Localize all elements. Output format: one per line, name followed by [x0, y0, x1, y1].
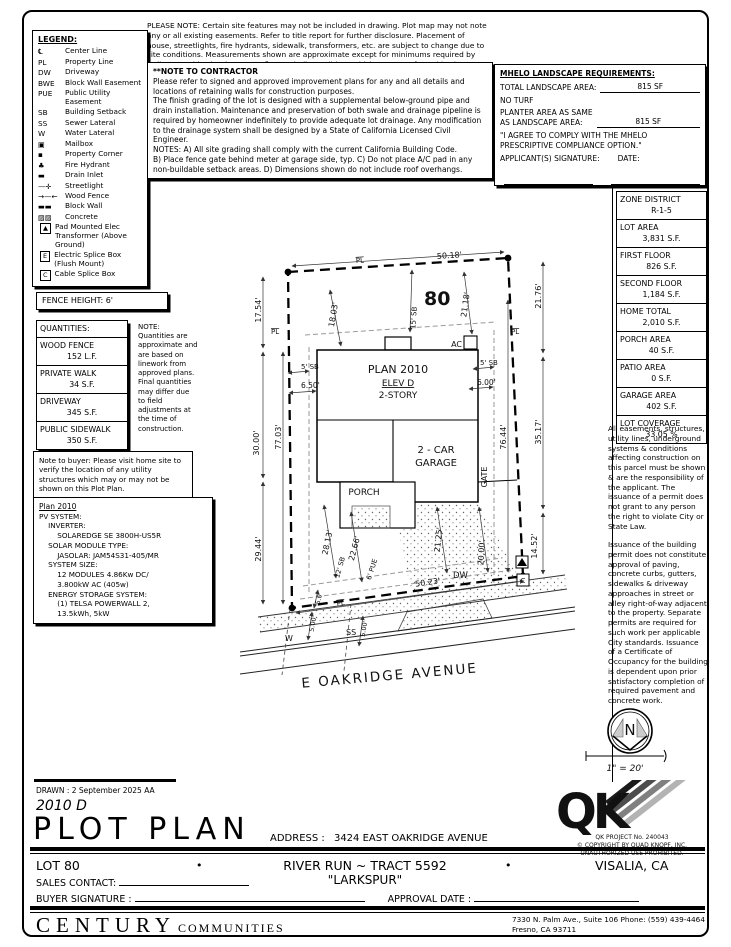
tract-label: RIVER RUN ~ TRACT 5592: [240, 858, 490, 873]
gate-label: GATE: [480, 467, 489, 488]
cable-box-label: C: [521, 577, 526, 585]
legend-item: PUE Public Utility Easement: [38, 89, 142, 107]
legend-symbol-icon: W: [38, 129, 61, 138]
legend-item-label: Mailbox: [65, 140, 142, 149]
porch-step: [352, 506, 390, 528]
zone-table-row: SECOND FLOOR 1,184 S.F.: [616, 275, 707, 304]
pv-line: (1) TELSA POWERWALL 2,: [39, 599, 207, 609]
legend-item: E Electric Splice Box (Flush Mount): [38, 251, 142, 269]
quantity-row: WOOD FENCE 152 L.F.: [36, 337, 128, 366]
pv-line: 3.800kW AC (405w): [39, 580, 207, 590]
dim-500a: 5.00': [308, 615, 319, 633]
legend-item-label: Sewer Lateral: [65, 119, 142, 128]
north-letter: N: [624, 721, 635, 739]
dw-label: DW: [453, 571, 469, 581]
legend-title: LEGEND:: [38, 35, 142, 45]
address-row: ADDRESS : 3424 EAST OAKRIDGE AVENUE: [270, 833, 488, 844]
mhelo-agree-statement: "I AGREE TO COMPLY WITH THE MHELO PRESCR…: [500, 131, 700, 151]
pv-line: PV SYSTEM:: [39, 512, 207, 522]
contractor-note-title: **NOTE TO CONTRACTOR: [153, 67, 487, 77]
dim-2176: 21.76': [534, 283, 543, 308]
legend-item: ▨▨ Concrete: [38, 213, 142, 222]
quantity-value: 345 S.F.: [40, 406, 124, 417]
scale-label: 1" = 20': [606, 764, 643, 774]
zone-table-row: HOME TOTAL 2,010 S.F.: [616, 303, 707, 332]
legend-item: —✛ Streetlight: [38, 182, 142, 191]
mhelo-signature-label: APPLICANT(S) SIGNATURE:: [500, 154, 600, 164]
scale-bar: 1" = 20': [582, 748, 677, 774]
legend-item: ▬ Drain Inlet: [38, 171, 142, 180]
legend-item: ▬▬ Block Wall: [38, 202, 142, 211]
quantity-row: PRIVATE WALK 34 S.F.: [36, 365, 128, 394]
dim-3000: 30.00': [252, 430, 261, 455]
legend-item: ℄ Center Line: [38, 47, 142, 56]
dim-1452: 14.52': [530, 533, 539, 558]
legend-box: LEGEND: ℄ Center Line PL Property Line D…: [32, 30, 148, 287]
pl-label-bottom: PL: [336, 599, 345, 608]
quantity-row: PUBLIC SIDEWALK 350 S.F.: [36, 421, 128, 450]
dim-top-label: 50.18': [437, 250, 463, 261]
pv-line: ENERGY STORAGE SYSTEM:: [39, 590, 207, 600]
legend-item: ▲ Pad Mounted Elec Transformer (Above Gr…: [38, 223, 142, 250]
legend-item: →—← Wood Fence: [38, 192, 142, 201]
buyer-signature-label: BUYER SIGNATURE :: [36, 894, 132, 905]
legend-symbol-icon: SS: [38, 119, 61, 128]
drawn-by: DRAWN : 2 September 2025 AA: [36, 786, 155, 795]
pv-line: 12 MODULES 4.86Kw DC/: [39, 570, 207, 580]
legend-symbol-icon: ▲: [40, 223, 51, 234]
address-label: ADDRESS :: [270, 833, 325, 844]
legend-item: PL Property Line: [38, 58, 142, 67]
legend-symbol-icon: ▬▬: [38, 202, 61, 211]
legend-item-label: Driveway: [65, 68, 142, 77]
thin-rule-1: [30, 853, 705, 854]
water-mark: W: [285, 634, 293, 643]
quantity-label: WOOD FENCE: [40, 341, 124, 350]
zone-row-value: 1,184 S.F.: [620, 288, 703, 299]
porch-label: PORCH: [348, 488, 379, 498]
lot-number: 80: [424, 288, 450, 310]
mhelo-date-label: DATE:: [618, 154, 640, 164]
legend-symbol-icon: BWE: [38, 79, 61, 88]
dim-1803: 18.03': [327, 301, 340, 327]
legend-symbol-icon: —✛: [38, 182, 61, 191]
mhelo-no-turf: NO TURF: [500, 96, 700, 106]
pl-label-right: PL: [511, 328, 519, 336]
titleblock-top-rule: [34, 779, 176, 782]
zone-row-label: SECOND FLOOR: [620, 279, 703, 288]
quantities-box: QUANTITIES: WOOD FENCE 152 L.F. PRIVATE …: [36, 321, 128, 450]
address-value: 3424 EAST OAKRIDGE AVENUE: [334, 833, 488, 844]
mhelo-total-label: TOTAL LANDSCAPE AREA:: [500, 83, 596, 93]
buyer-signature-row: BUYER SIGNATURE : APPROVAL DATE :: [36, 891, 639, 905]
legend-symbol-icon: ℄: [38, 47, 61, 56]
pv-line: INVERTER:: [39, 521, 207, 531]
sales-contact-line: [119, 875, 249, 886]
legend-item-label: Public Utility Easement: [65, 89, 142, 107]
quantity-value: 34 S.F.: [40, 378, 124, 389]
builder-address: 7330 N. Palm Ave., Suite 106 Phone: (559…: [512, 915, 705, 935]
street-name: E OAKRIDGE AVENUE: [301, 660, 479, 691]
zone-row-value: 2,010 S.F.: [620, 316, 703, 327]
mhelo-date-line: [611, 174, 700, 185]
legend-item-label: Drain Inlet: [65, 171, 142, 180]
legend-symbol-icon: E: [40, 251, 50, 262]
legend-item-label: Wood Fence: [65, 192, 142, 201]
legend-item: DW Driveway: [38, 68, 142, 77]
qk-logo-text: QK: [556, 784, 632, 840]
contractor-note-box: **NOTE TO CONTRACTOR Please refer to sig…: [147, 62, 493, 179]
legend-item-label: Fire Hydrant: [65, 161, 142, 170]
contractor-note-body: Please refer to signed and approved impr…: [153, 77, 487, 175]
garage-label-2: GARAGE: [415, 458, 457, 469]
tract-name: "LARKSPUR": [240, 873, 490, 887]
qk-project-no: QK PROJECT No. 240043: [595, 834, 668, 841]
pv-line: SOLAR MODULE TYPE:: [39, 541, 207, 551]
fence-height-box: FENCE HEIGHT: 6': [36, 292, 168, 310]
plot-plan-sheet: PLEASE NOTE: Certain site features may n…: [0, 0, 731, 947]
zone-table-row: PATIO AREA 0 S.F.: [616, 359, 707, 388]
legend-item-label: Property Corner: [65, 150, 142, 159]
dim-2000: 20.00': [476, 540, 486, 566]
pl-label-left: PL: [271, 328, 279, 336]
approval-date-label: APPROVAL DATE :: [388, 894, 472, 905]
legend-symbol-icon: SB: [38, 108, 61, 117]
ac-label: AC: [451, 340, 462, 349]
legend-item-label: Streetlight: [65, 182, 142, 191]
legend-item-label: Concrete: [65, 213, 142, 222]
pv-line: 13.5kWh, 5kW: [39, 609, 207, 619]
zone-row-label: GARAGE AREA: [620, 391, 703, 400]
builder-address-line1: 7330 N. Palm Ave., Suite 106 Phone: (559…: [512, 915, 705, 925]
dim-7644: 76.44': [499, 424, 508, 449]
sb5-left-label: 5' SB: [301, 363, 319, 371]
builder-name-1: CENTURY: [36, 913, 176, 937]
zone-row-label: HOME TOTAL: [620, 307, 703, 316]
sales-contact-row: SALES CONTACT:: [36, 875, 249, 889]
quantity-row: DRIVEWAY 345 S.F.: [36, 393, 128, 422]
sales-contact-label: SALES CONTACT:: [36, 878, 116, 889]
zone-row-label: FIRST FLOOR: [620, 251, 703, 260]
quantities-note: NOTE: Quantities are approximate and are…: [138, 323, 198, 434]
zone-row-value: 40 S.F.: [620, 344, 703, 355]
legend-item-label: Block Wall Easement: [65, 79, 142, 88]
sb15-label: 15' SB: [409, 306, 419, 329]
pv-title: Plan 2010: [39, 502, 207, 512]
legend-item-label: Property Line: [65, 58, 142, 67]
plan-elev-label: ELEV D: [382, 379, 414, 389]
mhelo-total-value: 815 SF: [600, 82, 700, 93]
builder-address-line2: Fresno, CA 93711: [512, 925, 705, 935]
zone-row-label: LOT AREA: [620, 223, 703, 232]
heavy-rule-1: [30, 847, 705, 851]
legend-item: C Cable Splice Box: [38, 270, 142, 281]
legend-symbol-icon: ▬: [38, 171, 61, 180]
zone-table-row: PORCH AREA 40 S.F.: [616, 331, 707, 360]
pl-label-top: PL: [356, 256, 365, 265]
zone-table-row: GARAGE AREA 402 S.F.: [616, 387, 707, 416]
builder-name-2: COMMUNITIES: [178, 921, 285, 935]
pv-line: JASOLAR: JAM54S31-405/MR: [39, 551, 207, 561]
zone-row-value: 826 S.F.: [620, 260, 703, 271]
legend-item-label: Electric Splice Box (Flush Mount): [54, 251, 142, 269]
legend-symbol-icon: PUE: [38, 89, 61, 98]
dim-7703: 77.03': [274, 424, 283, 449]
bullet-1: •: [196, 859, 203, 872]
plan-title-label: PLAN 2010: [368, 363, 428, 376]
legend-symbol-icon: DW: [38, 68, 61, 77]
pv-system-box: Plan 2010 PV SYSTEM: INVERTER: SOLAREDGE…: [33, 497, 213, 624]
lot-label: LOT 80: [36, 858, 80, 873]
legend-item: BWE Block Wall Easement: [38, 79, 142, 88]
legend-item: W Water Lateral: [38, 129, 142, 138]
builder-logo: CENTURY COMMUNITIES: [36, 913, 285, 938]
legend-symbol-icon: ▪: [38, 150, 61, 159]
legend-symbol-icon: ♣: [38, 161, 61, 170]
mhelo-planter-value: 815 SF: [597, 117, 700, 128]
approval-date-line: [474, 891, 639, 902]
zone-row-label: PATIO AREA: [620, 363, 703, 372]
ac-unit: [464, 336, 477, 349]
quantities-title: QUANTITIES:: [36, 320, 128, 338]
legend-item: ♣ Fire Hydrant: [38, 161, 142, 170]
bullet-2: •: [505, 859, 512, 872]
legend-item-label: Cable Splice Box: [55, 270, 142, 279]
zone-row-value: 402 S.F.: [620, 400, 703, 411]
plan-story-label: 2-STORY: [379, 391, 418, 401]
heavy-rule-2: [30, 906, 705, 910]
mhelo-box: MHELO LANDSCAPE REQUIREMENTS: TOTAL LAND…: [494, 64, 706, 186]
dim-1754: 17.54': [254, 297, 263, 322]
zone-row-value: R-1-5: [620, 204, 703, 215]
legend-symbol-icon: PL: [38, 58, 61, 67]
garage-label-1: 2 - CAR: [417, 445, 454, 456]
legend-symbol-icon: ▨▨: [38, 213, 61, 222]
quantity-value: 350 S.F.: [40, 434, 124, 445]
zone-row-label: PORCH AREA: [620, 335, 703, 344]
legend-item: SB Building Setback: [38, 108, 142, 117]
legend-item-label: Block Wall: [65, 202, 142, 211]
legend-symbol-icon: ▣: [38, 140, 61, 149]
sb5-right-label: 5' SB: [480, 359, 498, 367]
page-title: PLOT PLAN: [33, 812, 251, 847]
dim-650: 6.50': [301, 381, 320, 390]
city-label: VISALIA, CA: [595, 858, 668, 873]
dim-2944: 29.44': [254, 536, 263, 561]
legend-item-label: Pad Mounted Elec Transformer (Above Grou…: [55, 223, 142, 250]
pv-lines: PV SYSTEM: INVERTER: SOLAREDGE SE 3800H-…: [39, 512, 207, 619]
quantity-label: DRIVEWAY: [40, 397, 124, 406]
zone-row-label: ZONE DISTRICT: [620, 195, 703, 204]
legend-item: ▣ Mailbox: [38, 140, 142, 149]
zone-table-row: ZONE DISTRICT R-1-5: [616, 191, 707, 220]
dim-600: 6.00': [477, 378, 496, 387]
legend-item: SS Sewer Lateral: [38, 119, 142, 128]
buyer-note-box: Note to buyer: Please visit home site to…: [33, 451, 193, 498]
house-bump: [385, 337, 411, 350]
pv-line: SOLAREDGE SE 3800H-US5R: [39, 531, 207, 541]
mhelo-planter-label: PLANTER AREA AS SAME AS LANDSCAPE AREA:: [500, 108, 593, 128]
dim-2266: 22.66': [347, 535, 362, 562]
legend-symbol-icon: →—←: [38, 192, 61, 201]
site-plan-drawing: PL 50.18' 80 15' SB 18.03' 21.18' 17.54'…: [205, 240, 625, 705]
quantity-value: 152 L.F.: [40, 350, 124, 361]
pv-line: SYSTEM SIZE:: [39, 560, 207, 570]
zone-row-value: 0 S.F.: [620, 372, 703, 383]
quantity-label: PUBLIC SIDEWALK: [40, 425, 124, 434]
dim-2813: 28.13': [321, 529, 335, 555]
zone-table-row: LOT AREA 3,831 S.F.: [616, 219, 707, 248]
buyer-signature-line: [135, 891, 365, 902]
zone-data-table: ZONE DISTRICT R-1-5 LOT AREA 3,831 S.F. …: [616, 192, 707, 444]
zone-row-value: 3,831 S.F.: [620, 232, 703, 243]
quantity-label: PRIVATE WALK: [40, 369, 124, 378]
mhelo-signature-line: [504, 174, 593, 185]
sewer-mark: SS: [346, 628, 356, 637]
zone-table-row: FIRST FLOOR 826 S.F.: [616, 247, 707, 276]
quantities-list: WOOD FENCE 152 L.F. PRIVATE WALK 34 S.F.…: [36, 337, 128, 450]
sb12-label: 12' SB: [333, 556, 347, 579]
dim-3517: 35.17': [534, 419, 543, 444]
dim-2118: 21.18': [459, 292, 471, 318]
legend-symbol-icon: C: [40, 270, 51, 281]
legend-item-label: Center Line: [65, 47, 142, 56]
legend-item-label: Building Setback: [65, 108, 142, 117]
legend-item: ▪ Property Corner: [38, 150, 142, 159]
mhelo-title: MHELO LANDSCAPE REQUIREMENTS:: [500, 69, 700, 79]
pue6-label: 6' PUE: [365, 558, 379, 581]
legend-list: ℄ Center Line PL Property Line DW Drivew…: [38, 47, 142, 281]
legend-item-label: Water Lateral: [65, 129, 142, 138]
